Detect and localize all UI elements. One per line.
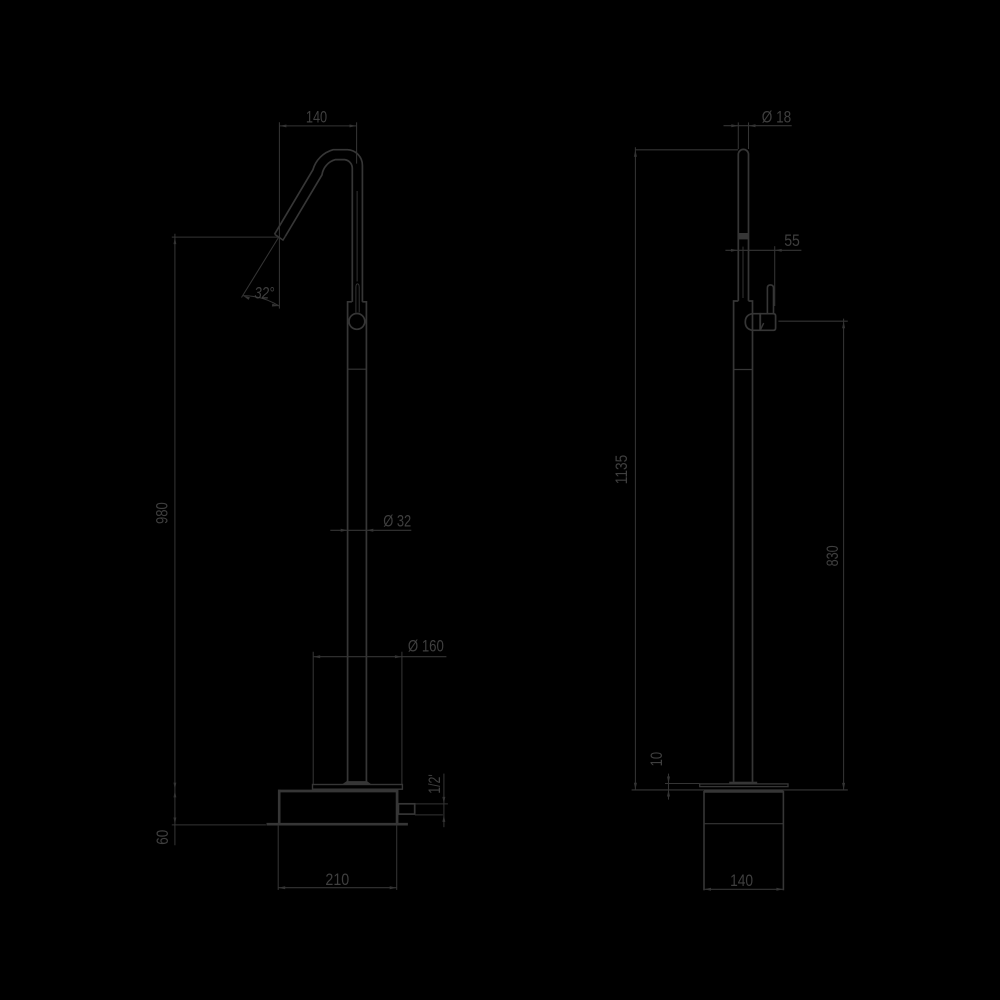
svg-text:55: 55 [784,232,800,250]
svg-text:140: 140 [306,109,327,127]
svg-text:140: 140 [730,872,753,890]
svg-text:Ø 18: Ø 18 [762,108,791,126]
svg-text:210: 210 [325,871,349,889]
svg-text:10: 10 [648,752,666,767]
svg-text:32°: 32° [254,285,274,303]
svg-text:980: 980 [154,502,172,524]
svg-text:60: 60 [154,830,172,845]
svg-text:1135: 1135 [613,455,631,484]
svg-text:Ø 32: Ø 32 [383,512,411,530]
svg-text:830: 830 [824,545,842,566]
svg-text:1/2': 1/2' [426,774,444,794]
svg-text:Ø 160: Ø 160 [408,637,444,655]
